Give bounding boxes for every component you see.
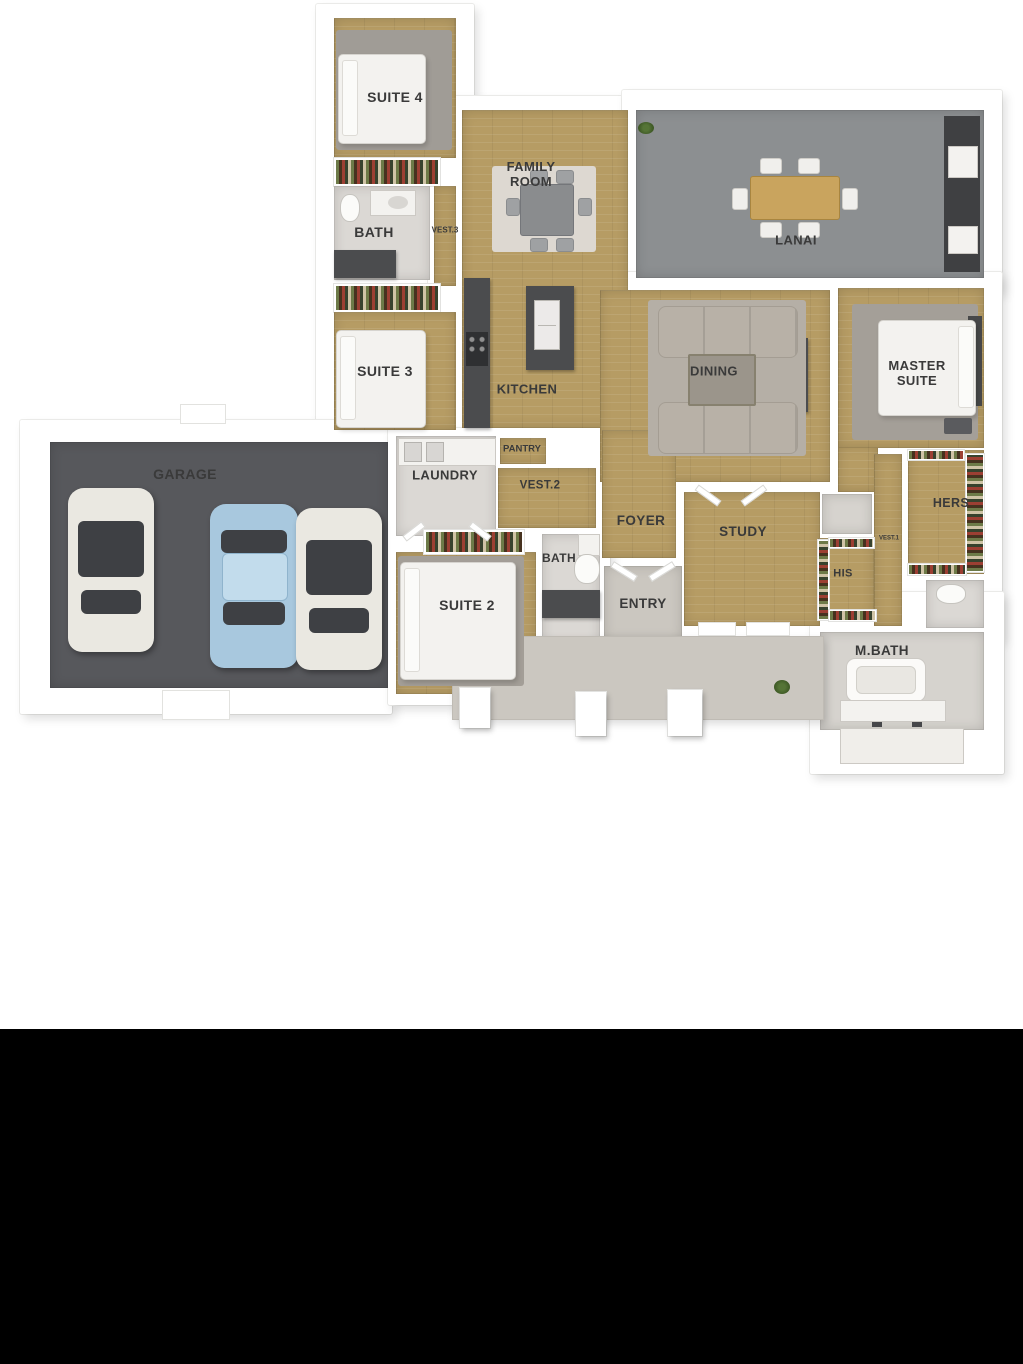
family-chair <box>530 238 548 252</box>
car-blue <box>210 504 298 668</box>
outdoor-grill <box>948 146 978 178</box>
hers-closet-rack <box>908 564 966 575</box>
plant <box>774 680 790 694</box>
family-chair <box>556 238 574 252</box>
room-label-study: STUDY <box>719 524 767 540</box>
lanai-chair <box>798 158 820 174</box>
room-label-his: HIS <box>833 568 853 581</box>
lanai-chair <box>760 158 782 174</box>
car-white-right <box>296 508 382 670</box>
car-rear-window <box>223 602 285 625</box>
hall-closet-rack <box>334 284 440 312</box>
room-label-lanai: LANAI <box>775 234 817 249</box>
room-label-family-room: FAMILY ROOM <box>494 160 568 190</box>
master-vanity <box>840 700 946 722</box>
hers-closet-rack <box>908 450 964 460</box>
plant <box>638 122 654 134</box>
bottom-letterbox <box>0 1029 1023 1364</box>
master-bathtub-basin <box>856 666 916 694</box>
room-label-entry: ENTRY <box>619 596 666 612</box>
car-windshield <box>306 540 371 595</box>
bath1-toilet <box>340 194 360 222</box>
bed-bench <box>944 418 972 434</box>
kitchen-cooktop <box>466 332 488 366</box>
car-rear-window <box>309 608 369 632</box>
room-label-vest2: VEST.2 <box>520 479 561 492</box>
window <box>698 622 736 636</box>
room-label-bath1: BATH <box>354 224 393 240</box>
room-label-master-suite: MASTER SUITE <box>875 359 959 389</box>
closet-hall-floor <box>822 494 872 534</box>
room-label-dining: DINING <box>690 365 738 380</box>
bath2-sink <box>578 534 600 556</box>
his-closet-rack <box>829 610 876 621</box>
room-label-vest1: VEST.1 <box>879 536 899 543</box>
family-chair <box>506 198 520 216</box>
room-label-foyer: FOYER <box>617 513 666 529</box>
bath1-shower <box>334 250 396 278</box>
lanai-chair <box>732 188 748 210</box>
car-roof <box>222 553 287 601</box>
garage-roof-vent <box>180 404 226 424</box>
coffee-table <box>688 354 756 406</box>
porch-pillar <box>460 688 490 728</box>
outdoor-sink <box>948 226 978 254</box>
car-windshield <box>78 521 143 577</box>
room-label-kitchen: KITCHEN <box>497 383 558 398</box>
study-floor <box>684 492 820 626</box>
bath2-shower <box>542 590 600 618</box>
hers-closet-rack <box>966 454 984 572</box>
vest2-floor <box>498 468 596 528</box>
car-windshield <box>221 530 288 553</box>
sofa <box>658 402 798 454</box>
room-label-pantry: PANTRY <box>503 445 541 456</box>
suite2-bed-pillows <box>404 568 420 672</box>
kitchen-sink <box>534 300 560 350</box>
his-closet-rack <box>818 540 829 620</box>
porch-pillar <box>576 692 606 736</box>
room-label-bath2: BATH <box>542 552 576 566</box>
bath1-sink <box>388 196 408 209</box>
suite3-bed-pillows <box>340 336 356 420</box>
room-label-suite4: SUITE 4 <box>367 89 423 105</box>
room-label-suite2: SUITE 2 <box>439 597 495 613</box>
room-label-hers: HERS <box>933 496 969 510</box>
room-label-vest3: VEST.3 <box>432 225 459 234</box>
room-label-laundry: LAUNDRY <box>412 469 478 484</box>
car-white-left <box>68 488 154 652</box>
his-closet-rack <box>829 538 874 548</box>
car-rear-window <box>81 590 141 615</box>
family-room-table <box>520 184 574 236</box>
vanity-faucet <box>912 722 922 727</box>
lanai-table <box>750 176 840 220</box>
sofa <box>658 306 798 358</box>
family-chair <box>578 198 592 216</box>
master-bed-pillows <box>958 326 974 408</box>
lanai-chair <box>842 188 858 210</box>
hall-floor <box>838 444 878 492</box>
room-label-master-bath: M.BATH <box>855 643 909 659</box>
master-shower <box>840 728 964 764</box>
room-label-suite3: SUITE 3 <box>357 363 413 379</box>
bath2-toilet <box>574 554 600 584</box>
vest3-floor <box>434 186 456 286</box>
suite4-bed-pillows <box>342 60 358 136</box>
washer <box>404 442 422 462</box>
driveway-apron <box>162 690 230 720</box>
suite2-closet-rack <box>424 530 524 554</box>
floor-plan-canvas: SUITE 4 BATH VEST.3 FAMILY ROOM LANAI SU… <box>0 0 1023 1364</box>
dryer <box>426 442 444 462</box>
room-label-garage: GARAGE <box>153 466 217 482</box>
vanity-faucet <box>872 722 882 727</box>
wc-toilet <box>936 584 966 604</box>
suite4-closet-rack <box>334 158 440 186</box>
porch-pillar <box>668 690 702 736</box>
window <box>746 622 790 636</box>
